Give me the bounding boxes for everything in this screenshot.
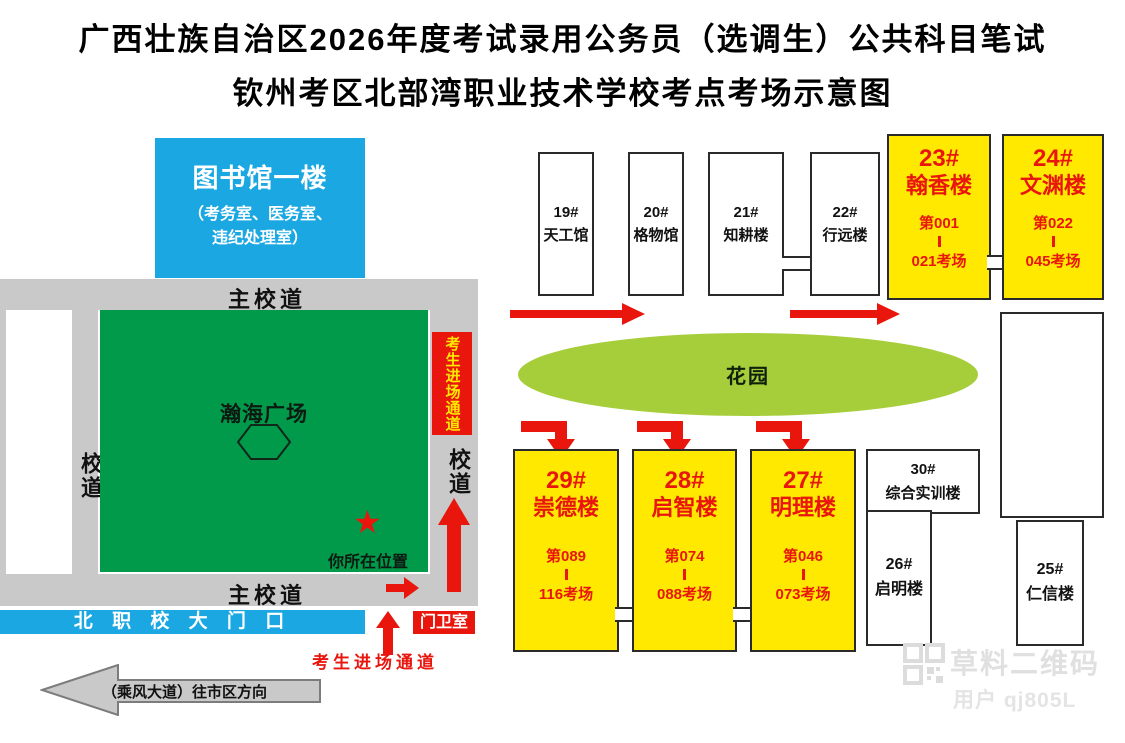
map-title-line1: 广西壮族自治区2026年度考试录用公务员（选调生）公共科目笔试	[0, 14, 1125, 59]
road-left	[72, 309, 98, 574]
building-name: 崇德楼	[533, 495, 599, 521]
building-name: 格物馆	[633, 224, 678, 247]
building-id: 27#	[783, 467, 823, 495]
building-id: 20#	[643, 201, 668, 224]
building-id: 25#	[1037, 558, 1064, 583]
road-right-label: 校道	[442, 448, 474, 496]
building-21: 21# 知耕楼	[708, 152, 784, 296]
building-28: 28# 启智楼 第074 088考场	[632, 449, 737, 652]
building-name: 天工馆	[543, 224, 588, 247]
library-box: 图书馆一楼 （考务室、医务室、 违纪处理室）	[155, 138, 365, 278]
building-19: 19# 天工馆	[538, 152, 594, 296]
room-from: 第074	[664, 545, 704, 566]
bridge-29-28	[615, 607, 632, 622]
route-arrow-2-icon	[790, 303, 900, 325]
you-are-here-star-icon: ★	[353, 506, 382, 538]
room-to: 116考场	[539, 583, 593, 604]
road-right: 考生进场通道 校道	[430, 279, 478, 606]
building-22: 22# 行远楼	[810, 152, 880, 296]
building-name: 翰香楼	[906, 173, 972, 199]
up-arrow-icon	[438, 498, 470, 592]
library-note: （考务室、医务室、 违纪处理室）	[155, 203, 365, 251]
building-id: 22#	[832, 201, 857, 224]
road-left-edge	[0, 279, 6, 606]
library-note-line1: （考务室、医务室、	[155, 203, 365, 227]
garden-label: 花园	[726, 360, 770, 389]
room-range-separator	[1052, 236, 1055, 247]
building-id: 28#	[664, 467, 704, 495]
building-23: 23# 翰香楼 第001 021考场	[887, 134, 991, 300]
room-range-separator	[683, 569, 686, 580]
room-range-separator	[802, 569, 805, 580]
room-range-separator	[565, 569, 568, 580]
entry-channel-gate-label: 考生进场通道	[312, 648, 438, 673]
room-range-separator	[938, 236, 941, 247]
plaza-green: 瀚海广场 ★ 你所在位置	[100, 310, 428, 572]
room-from: 第089	[546, 545, 586, 566]
building-name: 启智楼	[651, 495, 717, 521]
qr-code-icon	[903, 643, 945, 685]
room-to: 073考场	[775, 583, 830, 604]
building-id: 29#	[546, 467, 586, 495]
building-name: 仁信楼	[1026, 583, 1074, 608]
building-27: 27# 明理楼 第046 073考场	[750, 449, 856, 652]
room-to: 045考场	[1025, 250, 1080, 271]
building-id: 19#	[553, 201, 578, 224]
road-bottom-label: 主校道	[228, 578, 306, 610]
building-30: 30# 综合实训楼	[866, 449, 980, 514]
room-from: 第001	[919, 212, 959, 233]
watermark-user: 用户 qj805L	[953, 684, 1076, 714]
building-name: 启明楼	[875, 578, 923, 603]
building-name: 综合实训楼	[885, 482, 960, 505]
building-id: 21#	[733, 201, 758, 224]
building-id: 23#	[919, 145, 959, 173]
building-name: 行远楼	[822, 224, 867, 247]
room-from: 第046	[783, 545, 823, 566]
bridge-23-24	[987, 255, 1002, 270]
library-note-line2: 违纪处理室）	[155, 227, 365, 251]
building-29: 29# 崇德楼 第089 116考场	[513, 449, 619, 652]
you-are-here-label: 你所在位置	[328, 548, 408, 572]
library-title: 图书馆一楼	[155, 158, 365, 195]
plaza-hexagon-icon	[237, 424, 291, 460]
building-id: 30#	[910, 458, 935, 481]
entry-channel-vertical-box: 考生进场通道	[432, 332, 472, 435]
entry-channel-vertical-label: 考生进场通道	[442, 336, 463, 432]
building-id: 26#	[886, 553, 913, 578]
building-26: 26# 启明楼	[866, 510, 932, 646]
building-20: 20# 格物馆	[628, 152, 684, 296]
right-arrow-gate-icon	[386, 577, 419, 599]
bridge-21-22	[782, 256, 810, 271]
gate-bar: 北 职 校 大 门 口	[0, 610, 365, 634]
building-24: 24# 文渊楼 第022 045考场	[1002, 134, 1104, 300]
room-to: 088考场	[657, 583, 712, 604]
garden-ellipse: 花园	[518, 333, 978, 416]
building-unlabeled	[1000, 312, 1104, 518]
map-title-line2: 钦州考区北部湾职业技术学校考点考场示意图	[0, 68, 1125, 113]
exam-map-page: 广西壮族自治区2026年度考试录用公务员（选调生）公共科目笔试 钦州考区北部湾职…	[0, 0, 1125, 743]
room-to: 021考场	[911, 250, 966, 271]
avenue-label: （乘风大道）往市区方向	[102, 681, 267, 702]
watermark-brand: 草料二维码	[950, 642, 1100, 682]
room-from: 第022	[1033, 212, 1073, 233]
guard-room-box: 门卫室	[413, 611, 475, 634]
route-arrow-1-icon	[510, 303, 645, 325]
bridge-28-27	[733, 607, 750, 622]
building-25: 25# 仁信楼	[1016, 520, 1084, 646]
building-id: 24#	[1033, 145, 1073, 173]
building-name: 知耕楼	[723, 224, 768, 247]
building-name: 文渊楼	[1020, 173, 1086, 199]
building-name: 明理楼	[770, 495, 836, 521]
